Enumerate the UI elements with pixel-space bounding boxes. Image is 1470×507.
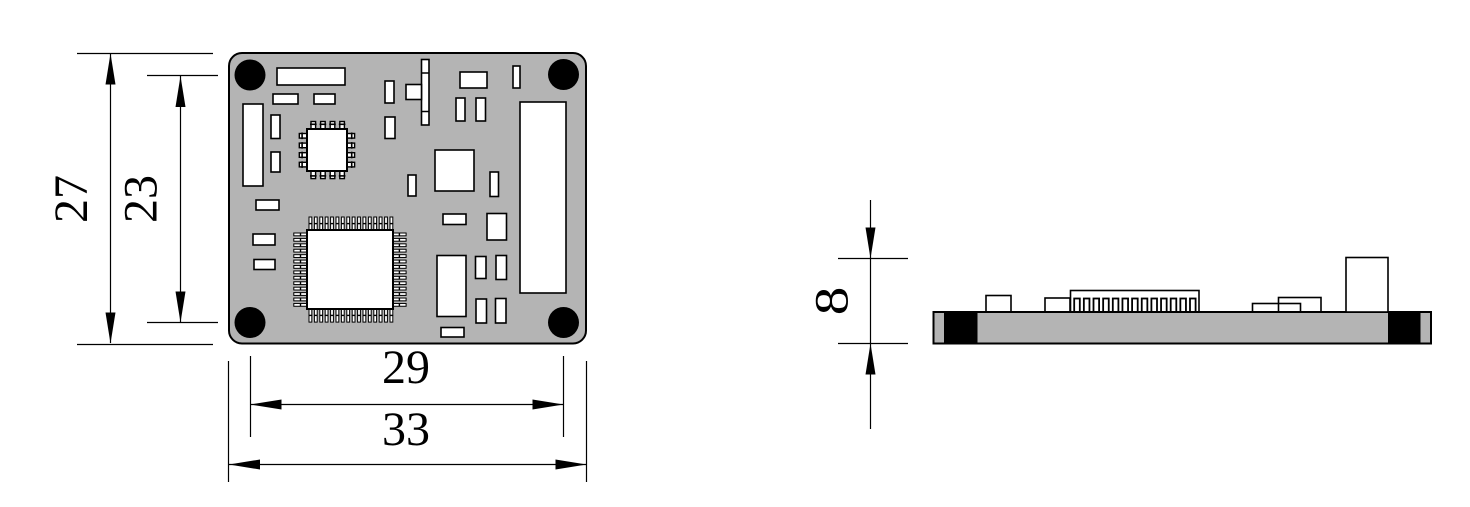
svg-text:33: 33: [382, 403, 430, 456]
svg-text:8: 8: [806, 287, 859, 316]
svg-text:29: 29: [382, 341, 430, 394]
svg-text:23: 23: [115, 175, 168, 223]
svg-text:27: 27: [45, 175, 98, 223]
